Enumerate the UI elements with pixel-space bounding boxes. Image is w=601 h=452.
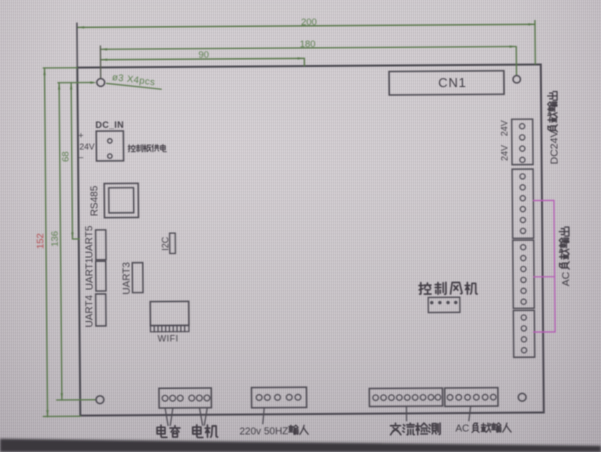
svg-text:136: 136 — [50, 231, 61, 247]
svg-text:24V: 24V — [79, 141, 95, 151]
svg-text:DC_IN: DC_IN — [95, 120, 124, 130]
svg-text:AC: AC — [455, 424, 469, 435]
svg-text:−: − — [78, 152, 83, 162]
svg-text:200: 200 — [301, 17, 317, 28]
svg-text:UART1: UART1 — [84, 257, 95, 290]
svg-text:UART5: UART5 — [84, 225, 95, 258]
svg-text:DC24V: DC24V — [548, 131, 560, 165]
svg-text:180: 180 — [300, 39, 316, 50]
svg-text:90: 90 — [198, 50, 209, 61]
svg-text:24V: 24V — [499, 120, 509, 136]
svg-text:I2C: I2C — [160, 236, 170, 251]
svg-text:220v 50HZ: 220v 50HZ — [239, 426, 288, 437]
svg-text:+: + — [78, 131, 83, 141]
svg-text:CN1: CN1 — [438, 75, 467, 90]
svg-text:68: 68 — [60, 151, 71, 162]
svg-text:RS485: RS485 — [89, 185, 100, 216]
svg-text:UART4: UART4 — [84, 294, 95, 327]
svg-text:152: 152 — [35, 233, 46, 249]
svg-text:AC: AC — [560, 271, 572, 286]
svg-text:24V: 24V — [500, 145, 510, 161]
svg-text:UART3: UART3 — [122, 262, 133, 295]
svg-text:WIFI: WIFI — [158, 333, 179, 343]
